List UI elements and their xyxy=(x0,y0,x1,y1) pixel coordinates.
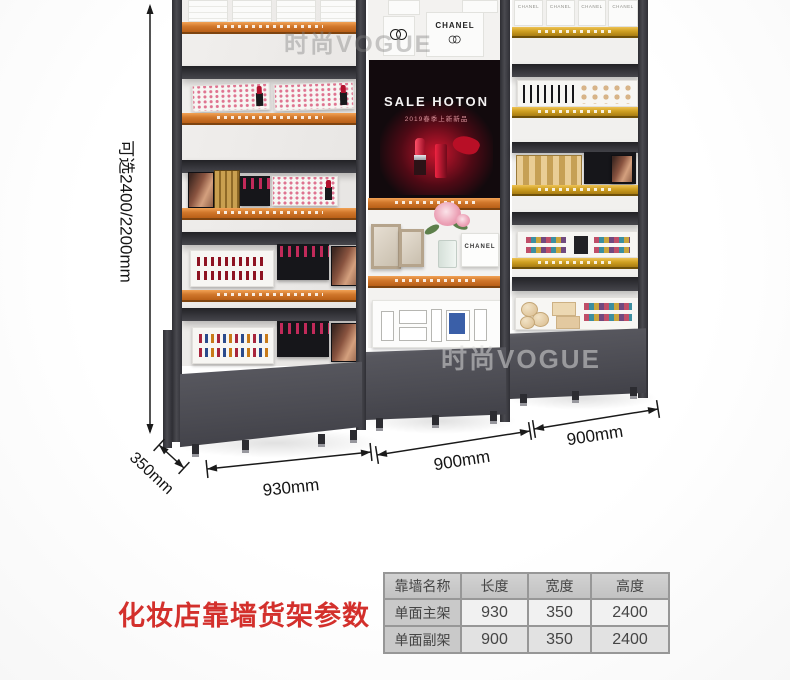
bottle-outline xyxy=(431,309,442,342)
cabinet-foot xyxy=(192,444,199,457)
bottle-outline xyxy=(381,311,394,341)
lipstick-tester xyxy=(325,187,332,200)
spec-table-header-row: 靠墙名称 长度 宽度 高度 xyxy=(384,573,669,599)
lipstick-graphic xyxy=(435,144,447,178)
chanel-sign: CHANEL xyxy=(461,233,499,267)
lipstick-tester xyxy=(256,93,263,106)
chanel-box: CHANEL xyxy=(578,0,606,26)
lipstick-rows xyxy=(199,348,269,357)
row-length: 900 xyxy=(461,626,528,653)
mini-swatches xyxy=(526,237,566,243)
cabinet-foot xyxy=(432,415,439,428)
lipstick-rows xyxy=(197,271,267,280)
chanel-box: CHANEL xyxy=(426,12,484,57)
box-outline xyxy=(399,310,427,324)
price-label-strip xyxy=(217,116,323,119)
powder-puff xyxy=(520,316,535,329)
chanel-box: CHANEL xyxy=(608,0,638,27)
spec-table: 靠墙名称 长度 宽度 高度 单面主架 930 350 2400 单面副架 900… xyxy=(383,572,670,654)
col-header-length: 长度 xyxy=(461,573,528,599)
table-row: 单面主架 930 350 2400 xyxy=(384,599,669,626)
lipstick-swatch-tray xyxy=(272,176,338,206)
chanel-box: CHANEL xyxy=(514,0,543,26)
col-header-width: 宽度 xyxy=(528,573,591,599)
table-row: 单面副架 900 350 2400 xyxy=(384,626,669,653)
product-box xyxy=(232,0,272,22)
shelf-board xyxy=(182,232,358,245)
col-header-name: 靠墙名称 xyxy=(384,573,461,599)
width-dimension-label-right: 900mm xyxy=(554,420,636,452)
shelf-board xyxy=(512,27,640,38)
product-image: CHANEL SALE HOTON 2019春季上新新品 CHANEL xyxy=(0,0,790,680)
chanel-box-label: CHANEL xyxy=(427,21,483,30)
watermark: 时尚VOGUE xyxy=(284,24,433,59)
row-name: 单面副架 xyxy=(384,626,461,653)
price-label-strip xyxy=(538,188,615,191)
mascara-row xyxy=(523,85,575,103)
lipstick-rows xyxy=(199,334,269,343)
lipstick-row-tray xyxy=(192,327,274,364)
picture-frame xyxy=(399,229,424,267)
compact-case xyxy=(574,236,588,254)
cabinet-foot xyxy=(520,394,527,406)
shelf-board xyxy=(512,107,640,118)
shelf-board xyxy=(182,113,358,125)
bottle-outline xyxy=(474,309,487,341)
lipstick-tester xyxy=(340,92,347,105)
flower-vase xyxy=(438,240,457,268)
price-label-strip xyxy=(538,261,615,264)
product-box xyxy=(188,0,228,22)
mini-swatches xyxy=(594,247,630,253)
lipstick-graphic xyxy=(415,138,425,155)
price-label-strip xyxy=(395,279,475,282)
lipstick-rows xyxy=(197,257,267,266)
row-height: 2400 xyxy=(591,626,669,653)
shelf-board xyxy=(182,66,358,79)
width-dimension-label-mid: 900mm xyxy=(421,445,503,477)
mini-swatches xyxy=(594,237,630,243)
beige-palette xyxy=(556,316,580,329)
shelf-board xyxy=(368,276,502,288)
eyeshadow-palette xyxy=(584,314,632,321)
shelf-board xyxy=(182,308,358,321)
model-photo-card xyxy=(611,155,633,183)
box-outline xyxy=(399,327,427,341)
cosmetics-tray xyxy=(517,231,638,258)
shelf-board xyxy=(512,258,640,269)
shelf-board xyxy=(512,64,640,77)
lipstick-swatch-tray xyxy=(192,83,271,113)
palette-with-photo xyxy=(584,152,636,184)
blue-perfume-box xyxy=(449,313,465,334)
price-label-strip xyxy=(217,211,323,214)
price-label-strip xyxy=(538,110,615,113)
row-width: 350 xyxy=(528,626,591,653)
cabinet-foot xyxy=(572,391,579,403)
beige-palette xyxy=(552,302,576,316)
cabinet-foot xyxy=(376,418,383,431)
eyeshadow-palette xyxy=(584,303,632,310)
product-box xyxy=(320,0,356,22)
promo-title: SALE HOTON xyxy=(369,94,504,109)
promo-screen: SALE HOTON 2019春季上新新品 xyxy=(369,60,504,198)
shelf-board xyxy=(512,185,640,196)
row-name: 单面主架 xyxy=(384,599,461,626)
cabinet-foot xyxy=(318,434,325,447)
cabinet-foot xyxy=(350,430,357,443)
gold-gift-box xyxy=(214,170,240,209)
price-label-strip xyxy=(217,293,323,296)
page-title: 化妆店靠墙货架参数 xyxy=(118,594,370,633)
lipstick-display xyxy=(240,176,270,206)
shelf-board xyxy=(182,290,358,302)
eyeshadow-swatches xyxy=(580,84,632,104)
chanel-box: CHANEL xyxy=(546,0,575,26)
watermark: 时尚VOGUE xyxy=(441,339,601,376)
height-dimension-label: 可选2400/2200mm xyxy=(116,101,141,323)
shelf-board xyxy=(182,208,358,220)
lipstick-graphic xyxy=(414,160,426,175)
row-width: 350 xyxy=(528,599,591,626)
shelf-board xyxy=(512,212,640,225)
makeup-tray xyxy=(517,80,638,107)
product-box xyxy=(276,0,316,22)
price-label-strip xyxy=(538,30,615,33)
cabinet-foot xyxy=(630,387,637,399)
col-header-height: 高度 xyxy=(591,573,669,599)
price-label-strip xyxy=(395,201,475,204)
promo-subtitle: 2019春季上新新品 xyxy=(369,113,504,123)
lipstick-row-tray xyxy=(190,250,274,287)
width-dimension-label-main: 930mm xyxy=(250,474,332,502)
chanel-sign-label: CHANEL xyxy=(462,244,498,250)
shelf-board xyxy=(512,277,640,291)
lipstick-display xyxy=(277,321,329,357)
lipstick-swatch-tray xyxy=(274,82,355,112)
gold-palette-strip xyxy=(516,155,582,186)
row-length: 930 xyxy=(461,599,528,626)
chanel-logo-icon xyxy=(449,36,462,44)
row-height: 2400 xyxy=(591,599,669,626)
cabinet-foot xyxy=(490,411,497,424)
lipstick-display xyxy=(277,244,329,280)
picture-frame xyxy=(371,224,401,269)
rose-flower xyxy=(456,214,470,227)
powder-tray xyxy=(515,297,641,330)
cabinet-foot xyxy=(242,440,249,453)
model-photo-card xyxy=(188,172,214,208)
product-box xyxy=(388,0,420,15)
side-leg xyxy=(163,330,172,448)
mini-swatches xyxy=(526,247,566,253)
